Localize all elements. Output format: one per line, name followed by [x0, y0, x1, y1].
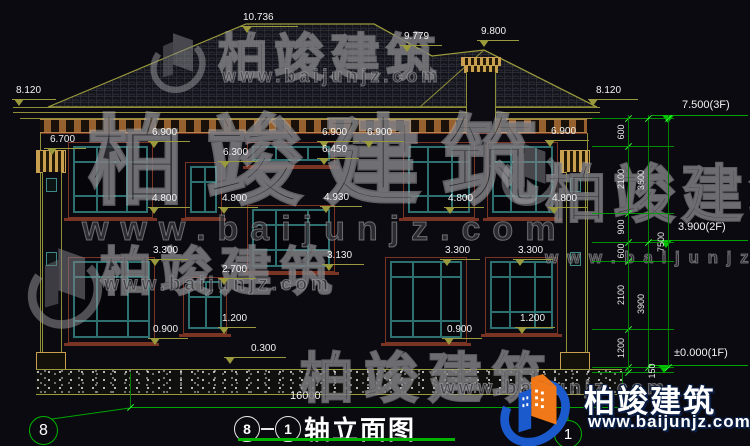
level-marker-triangle	[150, 259, 160, 266]
level-marker-triangle	[442, 259, 452, 266]
level-marker-text: 6.900	[551, 126, 576, 137]
level-marker-triangle	[149, 207, 159, 214]
chain-extension-line	[592, 118, 674, 119]
level-marker-text: 2.700	[222, 264, 247, 275]
chain-extension-line	[592, 146, 674, 147]
level-marker-text: 6.900	[322, 127, 347, 138]
chain-dim-text: 1200	[616, 338, 626, 358]
level-marker-triangle	[14, 99, 24, 106]
dimension-markers-layer: 10.7369.7799.8008.1208.1206.7006.9006.30…	[0, 0, 750, 446]
level-marker-triangle	[150, 338, 160, 345]
cad-elevation-canvas: 16000 8 1 8 1 轴立面图 柏竣建筑 www.baijunjz.com…	[0, 0, 750, 446]
level-marker-text: 4.800	[222, 193, 247, 204]
chain-dim-text: 3900	[636, 294, 646, 314]
chain-dim-text: 150	[647, 363, 657, 378]
chain-dim-text: 900	[616, 219, 626, 234]
level-marker-text: 9.779	[404, 31, 429, 42]
level-marker-triangle	[364, 141, 374, 148]
level-marker-text: 3.300	[153, 245, 178, 256]
level-marker-text: 4.930	[324, 192, 349, 203]
level-marker-triangle	[47, 148, 57, 155]
chain-dim-text: 600	[616, 124, 626, 139]
chain-dim-text: 3600	[636, 170, 646, 190]
level-marker-triangle	[149, 141, 159, 148]
level-marker-text: 6.900	[367, 127, 392, 138]
level-marker-text: ±0.000(1F)	[674, 347, 728, 359]
level-marker-text: 3.900(2F)	[678, 221, 726, 233]
level-marker-text: 8.120	[16, 85, 41, 96]
level-marker-triangle	[517, 327, 527, 334]
level-marker-text: 0.900	[447, 324, 472, 335]
level-marker-triangle	[549, 207, 559, 214]
level-marker-text: 0.900	[153, 324, 178, 335]
level-marker-text: 6.700	[50, 134, 75, 145]
level-marker-triangle	[319, 158, 329, 165]
level-marker-text: 10.736	[243, 12, 274, 23]
level-marker-triangle	[321, 206, 331, 213]
level-marker-text: 1.200	[520, 313, 545, 324]
level-marker-text: 3.300	[518, 245, 543, 256]
level-marker-text: 1.200	[222, 313, 247, 324]
level-marker-text: 6.300	[223, 147, 248, 158]
level-marker-triangle	[219, 278, 229, 285]
level-marker-triangle	[444, 338, 454, 345]
chain-dim-text: 2100	[616, 285, 626, 305]
chain-vertical-line	[628, 115, 629, 372]
level-marker-text: 4.800	[448, 193, 473, 204]
level-marker-triangle	[242, 26, 252, 33]
level-marker-text: 3.300	[445, 245, 470, 256]
level-marker-triangle	[220, 161, 230, 168]
chain-vertical-line	[668, 115, 669, 367]
chain-dim-text: 600	[616, 243, 626, 258]
chain-extension-line	[592, 261, 674, 262]
level-marker-text: 9.800	[481, 26, 506, 37]
chain-extension-line	[592, 329, 674, 330]
level-marker-triangle	[219, 327, 229, 334]
level-marker-text: 8.120	[596, 85, 621, 96]
level-marker-text: 4.800	[552, 193, 577, 204]
level-marker-triangle	[225, 357, 235, 364]
level-marker-triangle	[402, 45, 412, 52]
level-marker-triangle	[515, 259, 525, 266]
level-marker-text: 6.450	[322, 144, 347, 155]
chain-extension-line	[592, 372, 674, 373]
level-marker-text: 3.130	[327, 250, 352, 261]
chain-dim-text: 2100	[616, 169, 626, 189]
chain-dim-text: 7500	[656, 232, 666, 252]
level-marker-triangle	[545, 140, 555, 147]
chain-extension-line	[592, 367, 674, 368]
level-marker-triangle	[324, 264, 334, 271]
level-marker-triangle	[479, 40, 489, 47]
level-marker-text: 6.900	[152, 127, 177, 138]
level-marker-triangle	[219, 207, 229, 214]
level-marker-text: 4.800	[152, 193, 177, 204]
chain-extension-line	[592, 213, 674, 214]
level-marker-triangle	[588, 99, 598, 106]
level-marker-triangle	[445, 207, 455, 214]
level-marker-text: 0.300	[251, 343, 276, 354]
level-marker-text: 7.500(3F)	[682, 99, 730, 111]
